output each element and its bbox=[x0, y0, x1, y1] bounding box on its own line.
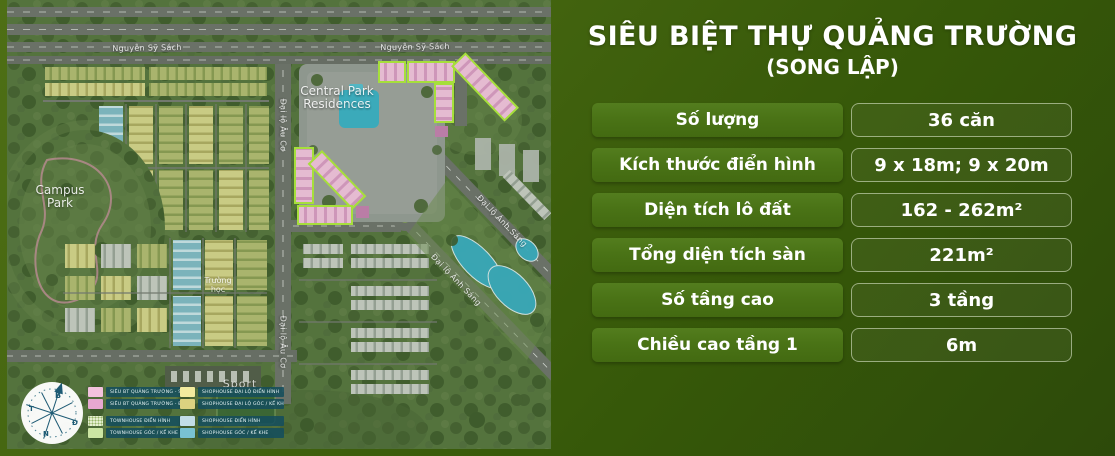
road-label-nguyen-sy-sach-2: Nguyễn Sỹ Sách bbox=[380, 42, 450, 52]
page-subtitle: (SONG LẬP) bbox=[560, 54, 1105, 80]
road-label-dai-lo-au-co-1: Đại lộ Âu Cơ bbox=[279, 99, 288, 152]
spec-table: Số lượng 36 căn Kích thước điển hình 9 x… bbox=[592, 103, 1072, 362]
place-label-campus-park: Campus Park bbox=[36, 184, 85, 210]
title-block: SIÊU BIỆT THỰ QUẢNG TRƯỜNG (SONG LẬP) bbox=[560, 20, 1105, 80]
spec-value-so-luong: 36 căn bbox=[851, 103, 1072, 137]
place-label-sport: Sport bbox=[223, 378, 258, 391]
central-park-line2: Residences bbox=[300, 98, 373, 111]
place-label-school: Trường học bbox=[204, 276, 231, 294]
spec-label-dien-tich-lo-dat: Diện tích lô đất bbox=[592, 193, 843, 227]
road-label-dai-lo-au-co-2: Đại lộ Âu Cơ bbox=[279, 316, 288, 369]
school-line2: học bbox=[204, 285, 231, 294]
table-row: Kích thước điển hình 9 x 18m; 9 x 20m bbox=[592, 148, 1072, 182]
spec-value-tong-dien-tich-san: 221m² bbox=[851, 238, 1072, 272]
slide: Nguyễn Sỹ Sách Nguyễn Sỹ Sách Đại lộ Âu … bbox=[0, 0, 1115, 456]
spec-value-kich-thuoc: 9 x 18m; 9 x 20m bbox=[851, 148, 1072, 182]
spec-label-kich-thuoc: Kích thước điển hình bbox=[592, 148, 843, 182]
table-row: Diện tích lô đất 162 - 262m² bbox=[592, 193, 1072, 227]
place-label-central-park-residences: Central Park Residences bbox=[300, 85, 373, 111]
spec-label-tong-dien-tich-san: Tổng diện tích sàn bbox=[592, 238, 843, 272]
page-title: SIÊU BIỆT THỰ QUẢNG TRƯỜNG bbox=[560, 20, 1105, 54]
school-line1: Trường bbox=[204, 276, 231, 285]
masterplan-map: Nguyễn Sỹ Sách Nguyễn Sỹ Sách Đại lộ Âu … bbox=[7, 0, 551, 449]
campus-park-line2: Park bbox=[36, 197, 85, 210]
table-row: Tổng diện tích sàn 221m² bbox=[592, 238, 1072, 272]
spec-label-chieu-cao-tang-1: Chiều cao tầng 1 bbox=[592, 328, 843, 362]
spec-label-so-luong: Số lượng bbox=[592, 103, 843, 137]
table-row: Chiều cao tầng 1 6m bbox=[592, 328, 1072, 362]
road-label-nguyen-sy-sach-1: Nguyễn Sỹ Sách bbox=[112, 43, 182, 53]
spec-label-so-tang-cao: Số tầng cao bbox=[592, 283, 843, 317]
spec-value-so-tang-cao: 3 tầng bbox=[851, 283, 1072, 317]
spec-value-dien-tich-lo-dat: 162 - 262m² bbox=[851, 193, 1072, 227]
table-row: Số lượng 36 căn bbox=[592, 103, 1072, 137]
table-row: Số tầng cao 3 tầng bbox=[592, 283, 1072, 317]
aerial-scene bbox=[7, 0, 551, 449]
spec-value-chieu-cao-tang-1: 6m bbox=[851, 328, 1072, 362]
